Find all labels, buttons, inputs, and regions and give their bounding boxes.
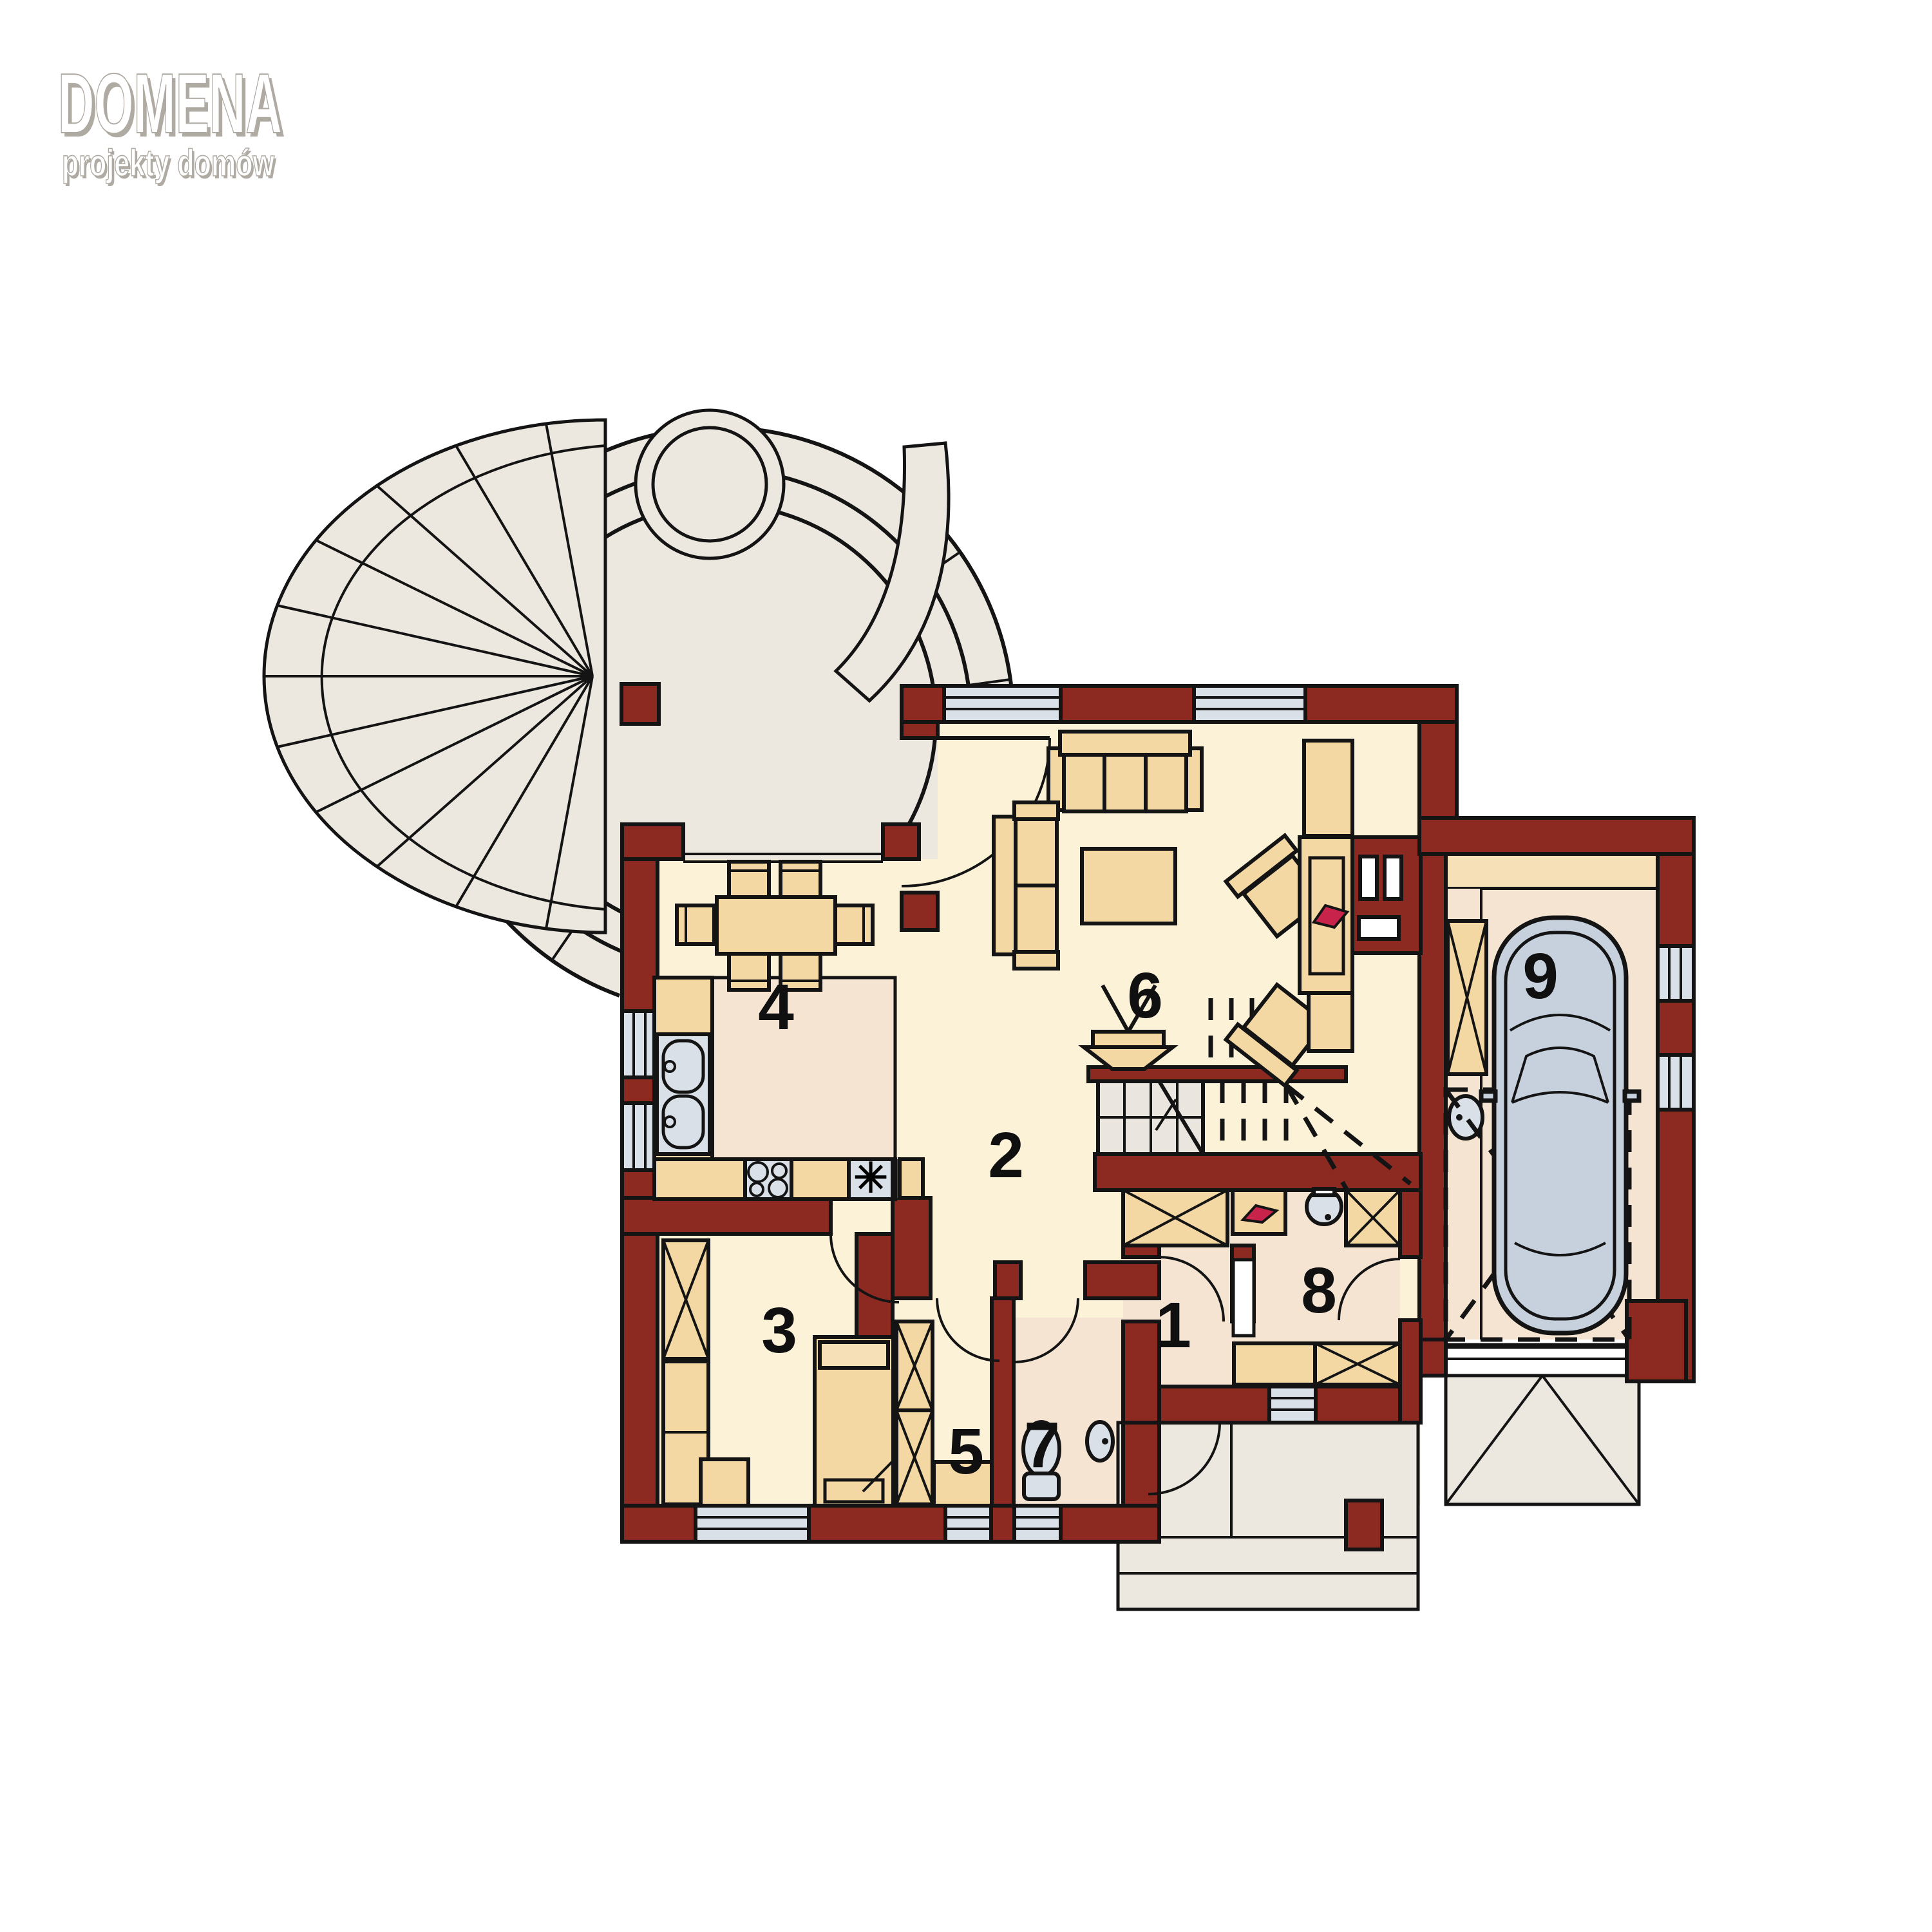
dining-table xyxy=(717,897,835,954)
garage-apron xyxy=(1446,1376,1639,1504)
garage-threshold-strip xyxy=(1446,854,1658,889)
wardrobe-bedroom xyxy=(663,1240,708,1359)
room-label-2: 2 xyxy=(988,1119,1024,1191)
dining-chair xyxy=(729,862,769,898)
desk-bedroom xyxy=(701,1459,748,1506)
window-garage-2 xyxy=(1658,1055,1694,1110)
coffee-table xyxy=(1082,849,1175,923)
kitchen-sink xyxy=(657,1034,710,1154)
logo-subtitle: projekty domów xyxy=(62,142,275,184)
car xyxy=(1481,918,1639,1333)
terrace-rotunda-outer xyxy=(636,410,784,558)
wall-room8-east-b xyxy=(1400,1320,1421,1423)
garage-cabinet xyxy=(1448,921,1486,1074)
logo-title: DOMENA xyxy=(58,56,282,151)
wardrobe-vestibule xyxy=(1123,1190,1227,1245)
floor-kitchen-zone xyxy=(712,978,895,1160)
window-garage-1 xyxy=(1658,946,1694,1001)
cabinet-room8-x xyxy=(1315,1343,1400,1385)
window-room8 xyxy=(1269,1387,1316,1423)
wall-west xyxy=(622,824,658,1542)
window-kitchen-1 xyxy=(622,1011,658,1077)
wardrobe-room8 xyxy=(1346,1190,1400,1245)
wall-hall-south-b xyxy=(1085,1262,1159,1298)
wall-room5-room7 xyxy=(992,1298,1014,1506)
window-living-2 xyxy=(1194,686,1305,722)
wall-living-west-b xyxy=(902,893,938,930)
cabinet-room8 xyxy=(1234,1343,1315,1385)
kitchen-counter-end xyxy=(900,1159,923,1198)
dining-chair xyxy=(835,905,873,944)
wardrobe-room5-upper xyxy=(896,1321,933,1410)
sofa-three-seat xyxy=(1048,732,1202,811)
shoe-shelf xyxy=(1233,1190,1285,1234)
wall-shelf-upper xyxy=(1304,741,1352,836)
garage-door xyxy=(1446,1346,1627,1359)
wall-garage-west xyxy=(1419,854,1446,1340)
room-label-5: 5 xyxy=(948,1416,984,1488)
room-label-7: 7 xyxy=(1024,1409,1060,1481)
wall-vestibule-west-b xyxy=(1123,1321,1159,1423)
wall-pillar-nw xyxy=(622,824,683,859)
dining-chair xyxy=(677,905,714,944)
wall-room8-east-a xyxy=(1400,1190,1421,1257)
washbasin-wc xyxy=(1087,1422,1113,1461)
wall-garage-door-jamb xyxy=(1419,1340,1446,1376)
wall-garage-corner xyxy=(1627,1301,1686,1381)
room-label-8: 8 xyxy=(1301,1255,1337,1327)
wall-under-stairs xyxy=(1095,1154,1421,1190)
window-room5 xyxy=(945,1506,991,1542)
room-label-6: 6 xyxy=(1127,960,1163,1032)
car-mirror-right xyxy=(1625,1092,1639,1101)
wall-hall-south-a xyxy=(995,1262,1021,1298)
door-leaf-room1-room8 xyxy=(1233,1260,1254,1336)
wall-shelf-lower xyxy=(1309,992,1352,1051)
fireplace xyxy=(1300,837,1352,993)
washbasin-room8 xyxy=(1307,1189,1341,1224)
car-mirror-left xyxy=(1481,1092,1495,1101)
logo: DOMENA DOMENA projekty domów projekty do… xyxy=(58,56,285,187)
wardrobe-room5-lower xyxy=(896,1410,933,1504)
wall-corner-bedroom xyxy=(893,1198,931,1298)
bed xyxy=(815,1337,893,1506)
dining-chair xyxy=(781,862,820,898)
room-label-4: 4 xyxy=(758,971,794,1043)
terrace-column xyxy=(621,684,659,724)
wall-bedroom-north xyxy=(622,1198,831,1234)
floorplan-page: ✳ xyxy=(0,0,1932,1932)
wall-pillar-ne-dining xyxy=(883,824,919,859)
floorplan-canvas: ✳ xyxy=(0,0,1932,1932)
sofa-two-seat xyxy=(994,802,1058,969)
kitchen-appliance: ✳ xyxy=(849,1155,893,1201)
room-label-9: 9 xyxy=(1522,940,1558,1012)
window-bedroom xyxy=(696,1506,809,1542)
room-label-1: 1 xyxy=(1155,1289,1191,1361)
wall-living-west-a xyxy=(902,722,938,738)
window-wc xyxy=(1014,1506,1061,1542)
porch-column xyxy=(1346,1501,1382,1549)
wall-garage-north xyxy=(1419,818,1694,854)
window-living-1 xyxy=(944,686,1061,722)
appliance-asterisk-icon: ✳ xyxy=(853,1155,888,1201)
cooktop xyxy=(745,1159,791,1199)
window-kitchen-2 xyxy=(622,1103,658,1170)
room-label-3: 3 xyxy=(761,1294,797,1367)
